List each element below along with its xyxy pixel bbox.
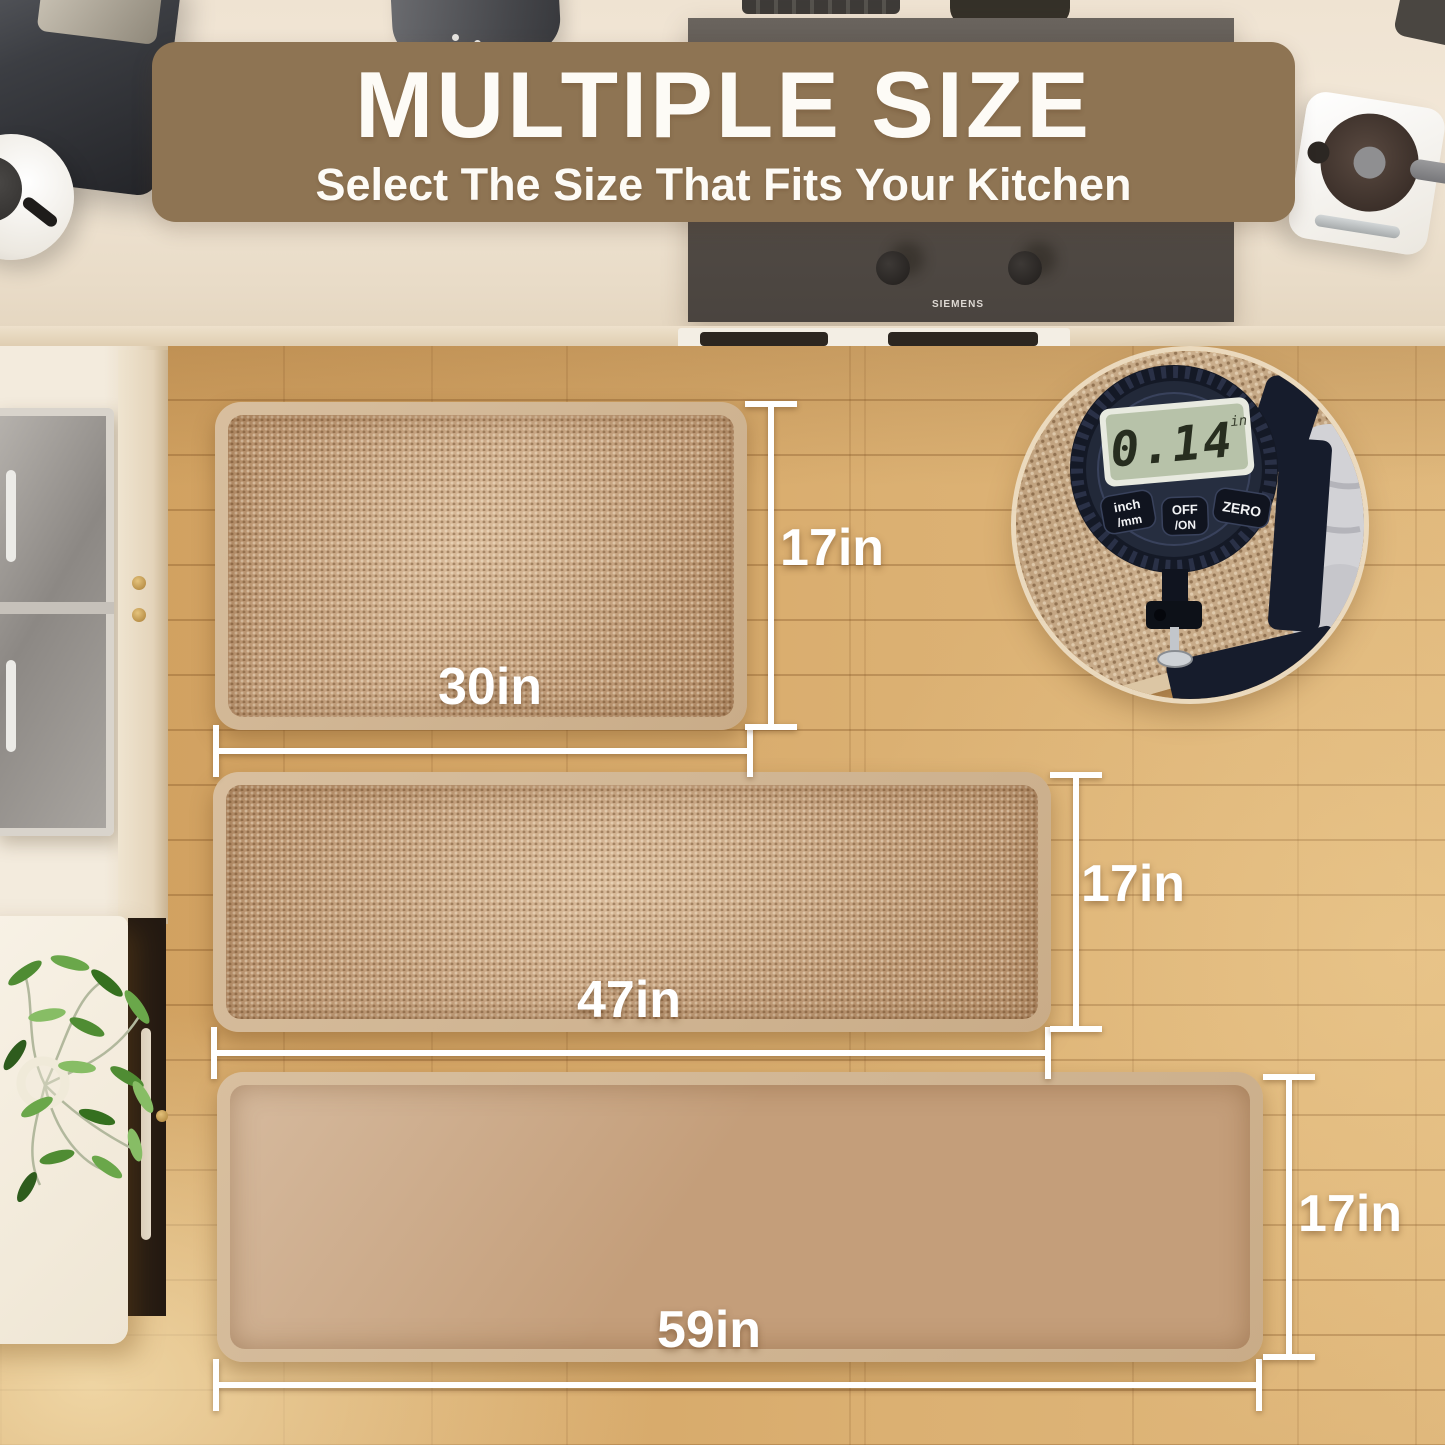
gauge-lcd: 0.14 in — [1099, 397, 1255, 488]
stainless-appliance-divider — [0, 602, 114, 614]
mat-30-width-label: 30in — [438, 661, 538, 713]
mat-47-height-label: 17in — [1081, 858, 1185, 910]
dimension-line-height-mat-30 — [768, 401, 774, 730]
mat-59-width-label: 59in — [657, 1304, 757, 1356]
appliance-handle — [6, 660, 16, 752]
gauge-button-off-on: OFF /ON — [1161, 496, 1208, 536]
gauge-reading: 0.14 — [1108, 412, 1236, 479]
gauge-anvil — [1158, 651, 1192, 667]
mat-30-height-label: 17in — [780, 522, 884, 574]
banner-subtitle: Select The Size That Fits Your Kitchen — [316, 162, 1132, 207]
pan-rivet — [452, 34, 459, 41]
gauge-stem — [1162, 569, 1188, 605]
cabinet-knob — [132, 576, 146, 590]
stove-knob — [1008, 251, 1042, 285]
dimension-line-height-mat-47 — [1073, 772, 1079, 1032]
svg-text:OFF: OFF — [1172, 502, 1199, 518]
thickness-gauge: 0.14 in inch /mm OFF /ON ZERO — [1016, 351, 1364, 699]
drawer-gap — [888, 332, 1038, 346]
air-fryer — [1285, 89, 1445, 269]
gauge-button-inch-mm: inch /mm — [1099, 489, 1157, 535]
product-image-kitchen-mats: SIEMENS — [0, 0, 1445, 1445]
dimension-line-width-mat-30 — [213, 748, 753, 754]
dimension-line-height-mat-59 — [1286, 1074, 1292, 1360]
banner-title: MULTIPLE SIZE — [355, 58, 1092, 152]
drawer-gap — [700, 332, 828, 346]
cabinet-column — [118, 350, 168, 924]
mat-47-width-label: 47in — [577, 974, 677, 1026]
stove-brand-label: SIEMENS — [908, 299, 1008, 310]
dimension-line-width-mat-59 — [213, 1382, 1262, 1388]
mat-59-height-label: 17in — [1298, 1188, 1402, 1240]
gauge-unit: in — [1230, 413, 1248, 430]
stove-knob — [876, 251, 910, 285]
thickness-gauge-inset: 0.14 in inch /mm OFF /ON ZERO — [1016, 351, 1364, 699]
cabinet-knob — [132, 608, 146, 622]
svg-text:/ON: /ON — [1174, 518, 1196, 533]
vent-grate — [742, 0, 900, 14]
dimension-line-width-mat-47 — [211, 1050, 1051, 1056]
header-banner: MULTIPLE SIZE Select The Size That Fits … — [152, 42, 1295, 222]
stainless-appliance — [0, 408, 114, 836]
potted-plant — [0, 935, 185, 1235]
appliance-handle — [6, 470, 16, 562]
